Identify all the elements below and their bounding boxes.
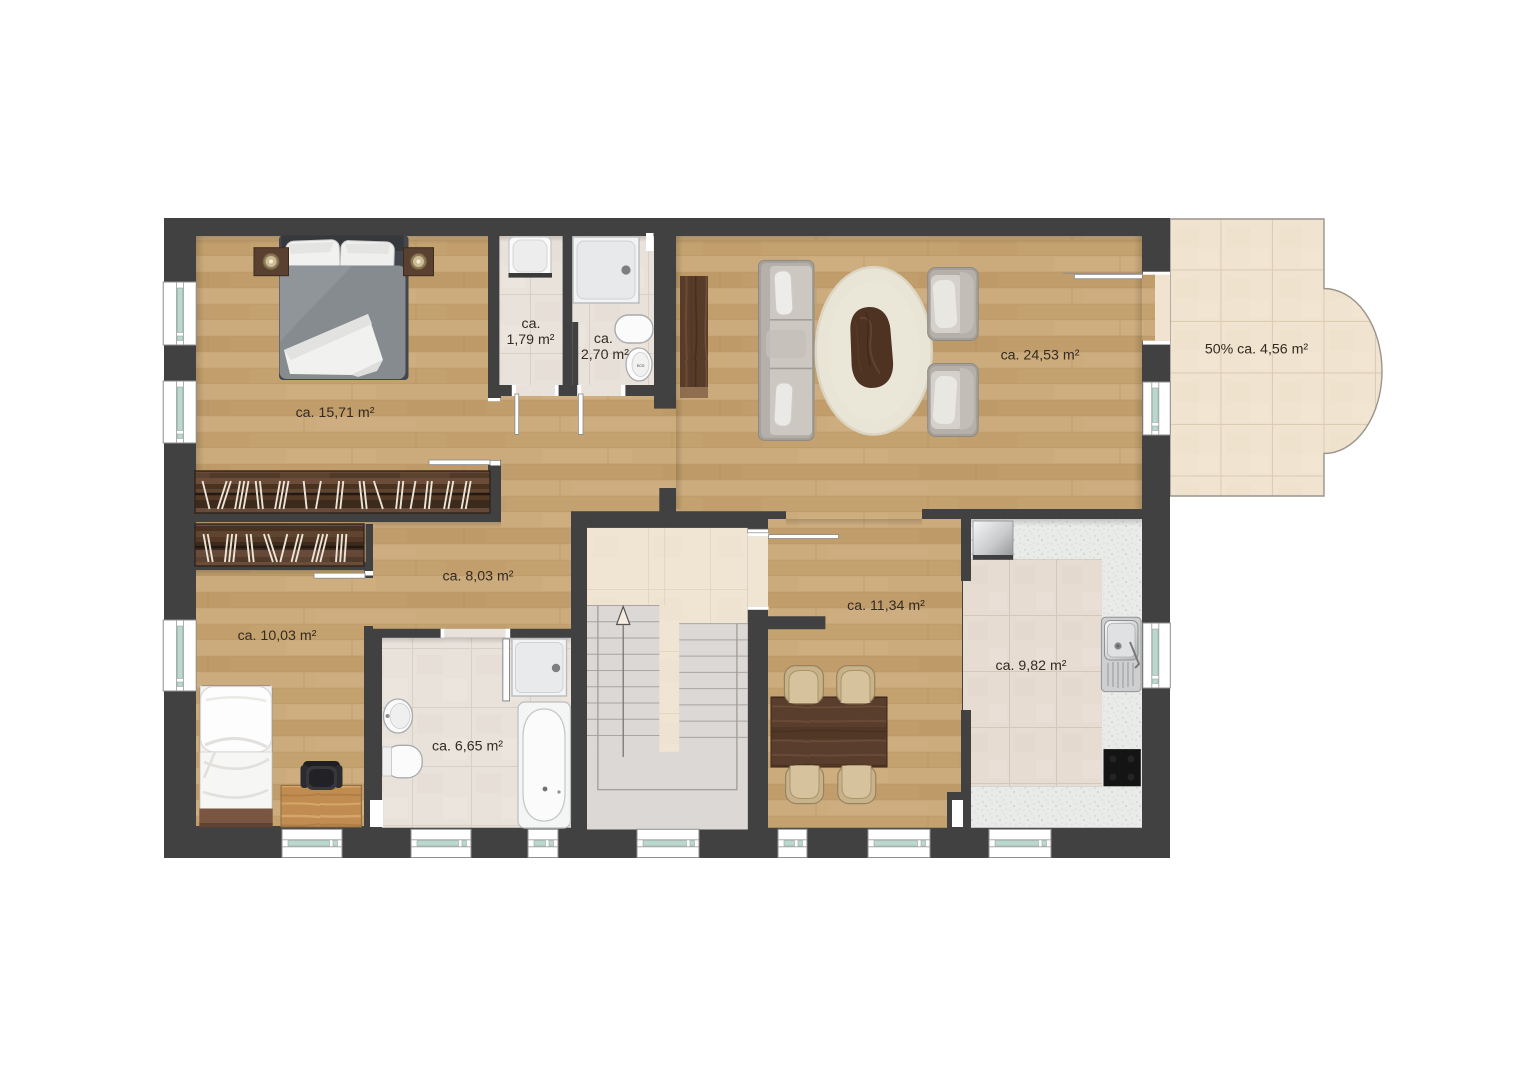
- svg-text:ECO: ECO: [637, 364, 645, 368]
- svg-text:ca. 9,82 m²: ca. 9,82 m²: [996, 658, 1067, 674]
- svg-text:ca. 8,03 m²: ca. 8,03 m²: [443, 569, 514, 585]
- svg-text:ca.: ca.: [522, 316, 541, 332]
- svg-text:ca. 24,53 m²: ca. 24,53 m²: [1001, 348, 1080, 364]
- svg-text:ca. 11,34 m²: ca. 11,34 m²: [847, 598, 925, 614]
- svg-text:50% ca. 4,56 m²: 50% ca. 4,56 m²: [1205, 342, 1309, 358]
- svg-text:ca. 6,65 m²: ca. 6,65 m²: [432, 739, 503, 755]
- svg-text:2,70 m²: 2,70 m²: [581, 347, 629, 363]
- svg-text:ca.: ca.: [594, 331, 613, 347]
- svg-text:ca. 15,71 m²: ca. 15,71 m²: [296, 405, 375, 421]
- svg-text:1,79 m²: 1,79 m²: [506, 332, 554, 348]
- svg-text:ca. 10,03 m²: ca. 10,03 m²: [238, 628, 317, 644]
